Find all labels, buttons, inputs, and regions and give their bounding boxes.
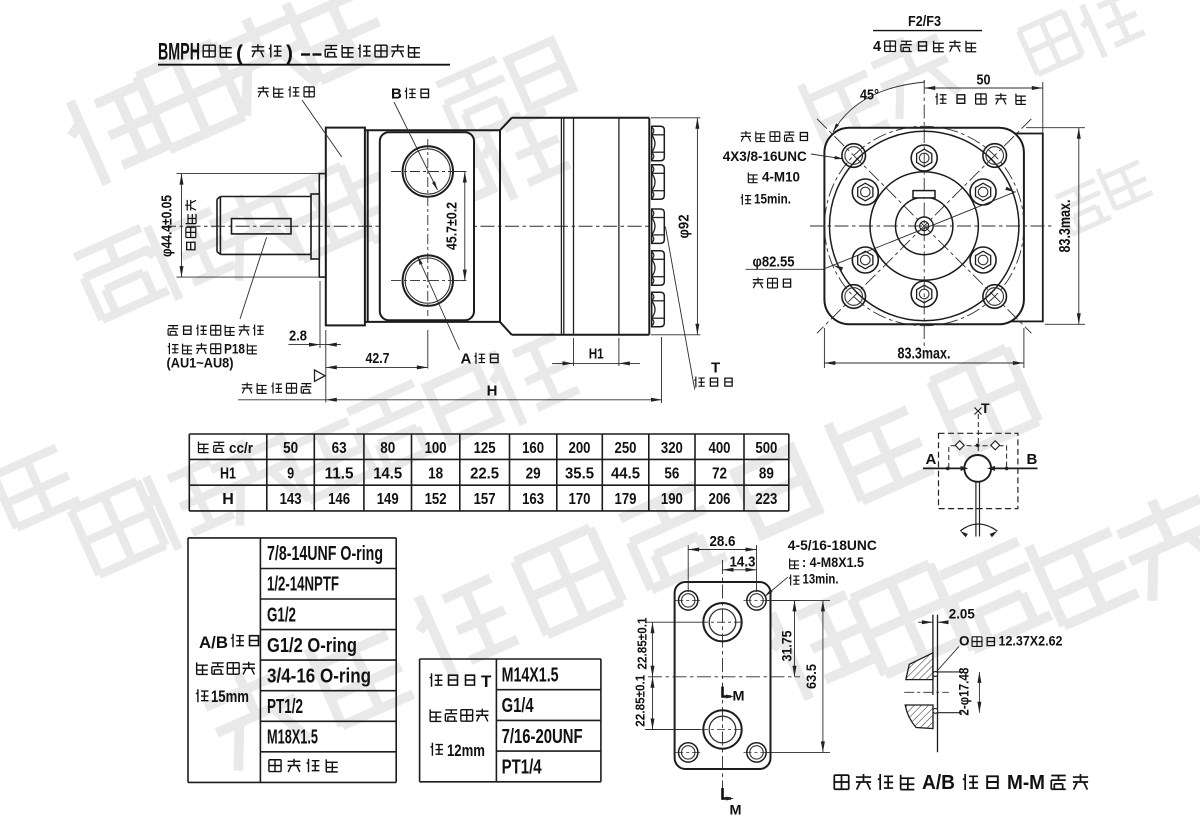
svg-text:89: 89 — [759, 466, 774, 483]
svg-text:44.5: 44.5 — [611, 466, 640, 483]
svg-text:): ) — [286, 42, 293, 65]
svg-text:143: 143 — [280, 491, 302, 508]
svg-text:9: 9 — [287, 466, 294, 483]
svg-text:11.5: 11.5 — [325, 466, 354, 483]
svg-text:45.7±0.2: 45.7±0.2 — [444, 202, 461, 250]
svg-text:80: 80 — [380, 440, 395, 457]
svg-text:157: 157 — [474, 491, 496, 508]
svg-text:7/8-14UNF O-ring: 7/8-14UNF O-ring — [267, 543, 383, 565]
svg-text:4-5/16-18UNC: 4-5/16-18UNC — [788, 538, 877, 553]
svg-text:G1/2: G1/2 — [267, 604, 296, 626]
svg-text:45°: 45° — [860, 87, 879, 104]
svg-text:G1/4: G1/4 — [502, 695, 535, 717]
svg-text:28.6: 28.6 — [710, 534, 736, 550]
svg-text:H: H — [487, 383, 498, 400]
svg-text:H1: H1 — [589, 346, 604, 363]
svg-text:T: T — [481, 672, 492, 691]
svg-text:22.5: 22.5 — [470, 466, 499, 483]
svg-text:14.3: 14.3 — [730, 555, 756, 571]
svg-text:149: 149 — [377, 491, 399, 508]
svg-text:22.85±0.1: 22.85±0.1 — [633, 675, 648, 727]
svg-text:14.5: 14.5 — [373, 466, 402, 483]
svg-text:PT1/4: PT1/4 — [502, 757, 543, 779]
svg-text:F2/F3: F2/F3 — [908, 13, 941, 30]
svg-text:φ44.4±0.05: φ44.4±0.05 — [159, 195, 176, 257]
svg-text:42.7: 42.7 — [366, 350, 390, 367]
svg-text:100: 100 — [425, 440, 447, 457]
svg-text:200: 200 — [569, 440, 591, 457]
svg-text:13min.: 13min. — [803, 572, 839, 587]
svg-text:163: 163 — [522, 491, 544, 508]
svg-text:320: 320 — [661, 440, 683, 457]
svg-text:15min.: 15min. — [754, 191, 791, 207]
svg-text:O: O — [959, 634, 970, 649]
svg-text:M: M — [733, 689, 745, 704]
svg-text:146: 146 — [328, 491, 350, 508]
svg-text:T: T — [981, 400, 990, 416]
svg-text:M14X1.5: M14X1.5 — [502, 664, 559, 686]
svg-text:φ82.55: φ82.55 — [753, 254, 795, 271]
svg-text:50: 50 — [977, 72, 991, 89]
svg-text:: 4-M8X1.5: : 4-M8X1.5 — [802, 555, 864, 570]
svg-text:500: 500 — [755, 440, 777, 457]
svg-text:190: 190 — [661, 491, 683, 508]
svg-text:A: A — [926, 451, 937, 468]
svg-text:7/16-20UNF: 7/16-20UNF — [502, 726, 583, 748]
svg-text:G1/2 O-ring: G1/2 O-ring — [267, 635, 357, 657]
svg-text:(: ( — [236, 42, 243, 65]
svg-text:H1: H1 — [220, 466, 236, 483]
svg-text:M18X1.5: M18X1.5 — [267, 727, 318, 749]
svg-text:M-M: M-M — [1007, 772, 1045, 794]
svg-text:35.5: 35.5 — [565, 466, 594, 483]
svg-text:206: 206 — [709, 491, 731, 508]
svg-text:2.05: 2.05 — [949, 606, 975, 622]
svg-text:152: 152 — [425, 491, 447, 508]
svg-text:29: 29 — [526, 466, 541, 483]
svg-text:3/4-16 O-ring: 3/4-16 O-ring — [267, 665, 371, 687]
svg-text:M: M — [730, 803, 742, 818]
svg-text:83.3max.: 83.3max. — [1057, 200, 1074, 253]
svg-text:4-M10: 4-M10 — [762, 169, 800, 185]
svg-text:160: 160 — [522, 440, 544, 457]
svg-text:PT1/2: PT1/2 — [267, 696, 303, 718]
svg-text:2-φ17.48: 2-φ17.48 — [956, 667, 971, 715]
svg-text:18: 18 — [428, 466, 443, 483]
svg-text:22.85±0.1: 22.85±0.1 — [635, 618, 650, 670]
svg-text:4: 4 — [873, 38, 882, 55]
svg-text:A/B: A/B — [199, 633, 228, 652]
svg-text:31.75: 31.75 — [779, 630, 795, 661]
svg-text:B: B — [1027, 451, 1038, 468]
svg-text:H: H — [222, 491, 234, 508]
svg-text:B: B — [391, 86, 402, 103]
svg-text:cc/r: cc/r — [229, 440, 253, 457]
svg-text:50: 50 — [283, 440, 298, 457]
svg-text:400: 400 — [709, 440, 731, 457]
svg-text:56: 56 — [664, 466, 679, 483]
svg-text:72: 72 — [712, 466, 727, 483]
svg-text:63.5: 63.5 — [803, 664, 819, 689]
svg-text:2.8: 2.8 — [289, 328, 307, 345]
svg-text:A/B: A/B — [922, 772, 955, 794]
svg-text:179: 179 — [615, 491, 637, 508]
svg-text:12mm: 12mm — [447, 741, 485, 760]
svg-text:BMPH: BMPH — [158, 39, 200, 66]
svg-text:125: 125 — [474, 440, 496, 457]
svg-text:A: A — [461, 351, 472, 368]
svg-text:170: 170 — [569, 491, 591, 508]
svg-text:4X3/8-16UNC: 4X3/8-16UNC — [723, 148, 807, 164]
svg-text:83.3max.: 83.3max. — [898, 346, 951, 363]
svg-text:φ92: φ92 — [676, 215, 693, 239]
svg-text:T: T — [711, 360, 720, 377]
svg-text:223: 223 — [755, 491, 777, 508]
svg-text:15mm: 15mm — [211, 687, 249, 706]
svg-text:1/2-14NPTF: 1/2-14NPTF — [267, 574, 339, 596]
svg-text:(AU1~AU8): (AU1~AU8) — [167, 355, 234, 371]
svg-text:63: 63 — [332, 440, 347, 457]
svg-text:12.37X2.62: 12.37X2.62 — [999, 634, 1063, 649]
svg-text:250: 250 — [615, 440, 637, 457]
